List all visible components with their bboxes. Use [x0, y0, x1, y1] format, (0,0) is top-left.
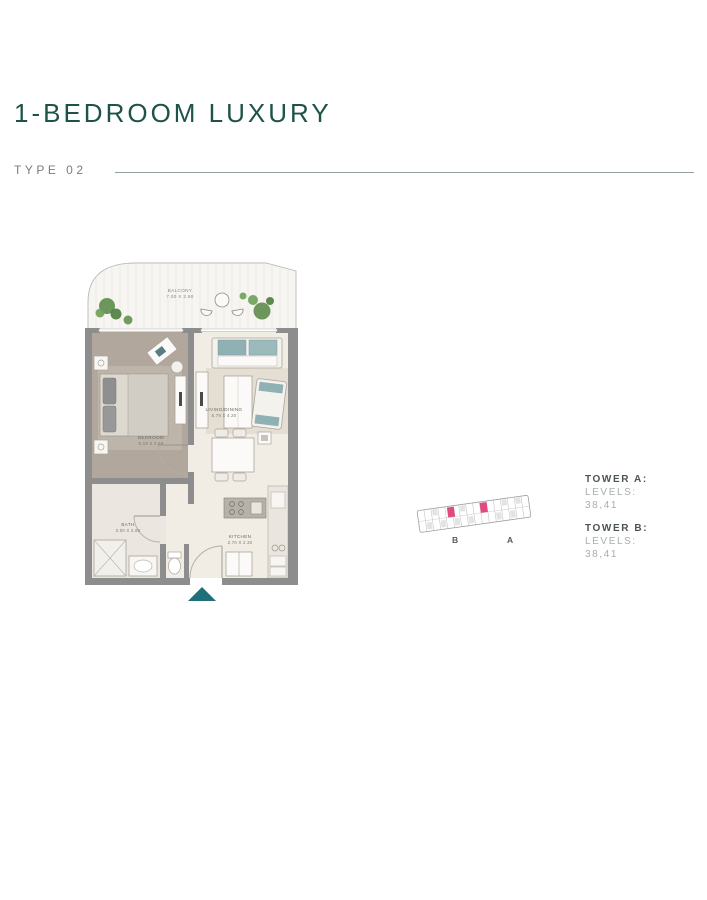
balcony-area: BALCONY 7.00 X 2.60	[88, 260, 296, 332]
balcony-dims: 7.00 X 2.60	[166, 294, 193, 299]
bedroom-label: BEDROOM	[138, 435, 164, 440]
tower-a-levels-label: LEVELS:	[585, 486, 695, 499]
page-title: 1-BEDROOM LUXURY	[14, 98, 332, 129]
tower-a-block: TOWER A: LEVELS: 38,41	[585, 473, 695, 512]
tower-b-name: TOWER B:	[585, 522, 695, 535]
bedroom-dims: 5.19 X 3.69	[139, 441, 164, 446]
key-plan-drawing: B A	[410, 483, 545, 548]
entrance-arrow-icon	[188, 587, 216, 601]
key-plan-tower-a-label: A	[507, 535, 514, 545]
toilet-icon	[168, 552, 181, 574]
type-label: TYPE 02	[14, 163, 87, 177]
balcony-label: BALCONY	[168, 288, 192, 293]
key-plan: B A	[410, 483, 545, 548]
highlighted-unit-b	[447, 507, 455, 518]
kitchen-label: KITCHEN	[229, 534, 252, 539]
tower-b-block: TOWER B: LEVELS: 38,41	[585, 522, 695, 561]
type-rule-divider	[115, 172, 694, 173]
tower-a-levels-value: 38,41	[585, 499, 695, 512]
bath-label: BATH	[121, 522, 134, 527]
tower-b-levels-value: 38,41	[585, 548, 695, 561]
floor-plan-drawing: BALCONY 7.00 X 2.60	[80, 255, 315, 610]
bath-dims: 3.00 X 2.60	[116, 528, 141, 533]
highlighted-unit-a	[480, 502, 488, 513]
floor-plan: BALCONY 7.00 X 2.60	[80, 255, 315, 610]
living-dining-dims: 5.79 X 4.20	[212, 413, 237, 418]
key-plan-tower-b-label: B	[452, 535, 459, 545]
living-dining-label: LIVING/DINING	[206, 407, 243, 412]
tower-info: TOWER A: LEVELS: 38,41 TOWER B: LEVELS: …	[585, 473, 695, 571]
tower-a-name: TOWER A:	[585, 473, 695, 486]
kitchen-dims: 2.70 X 2.30	[228, 540, 253, 545]
tower-b-levels-label: LEVELS:	[585, 535, 695, 548]
type-row: TYPE 02	[14, 163, 694, 179]
